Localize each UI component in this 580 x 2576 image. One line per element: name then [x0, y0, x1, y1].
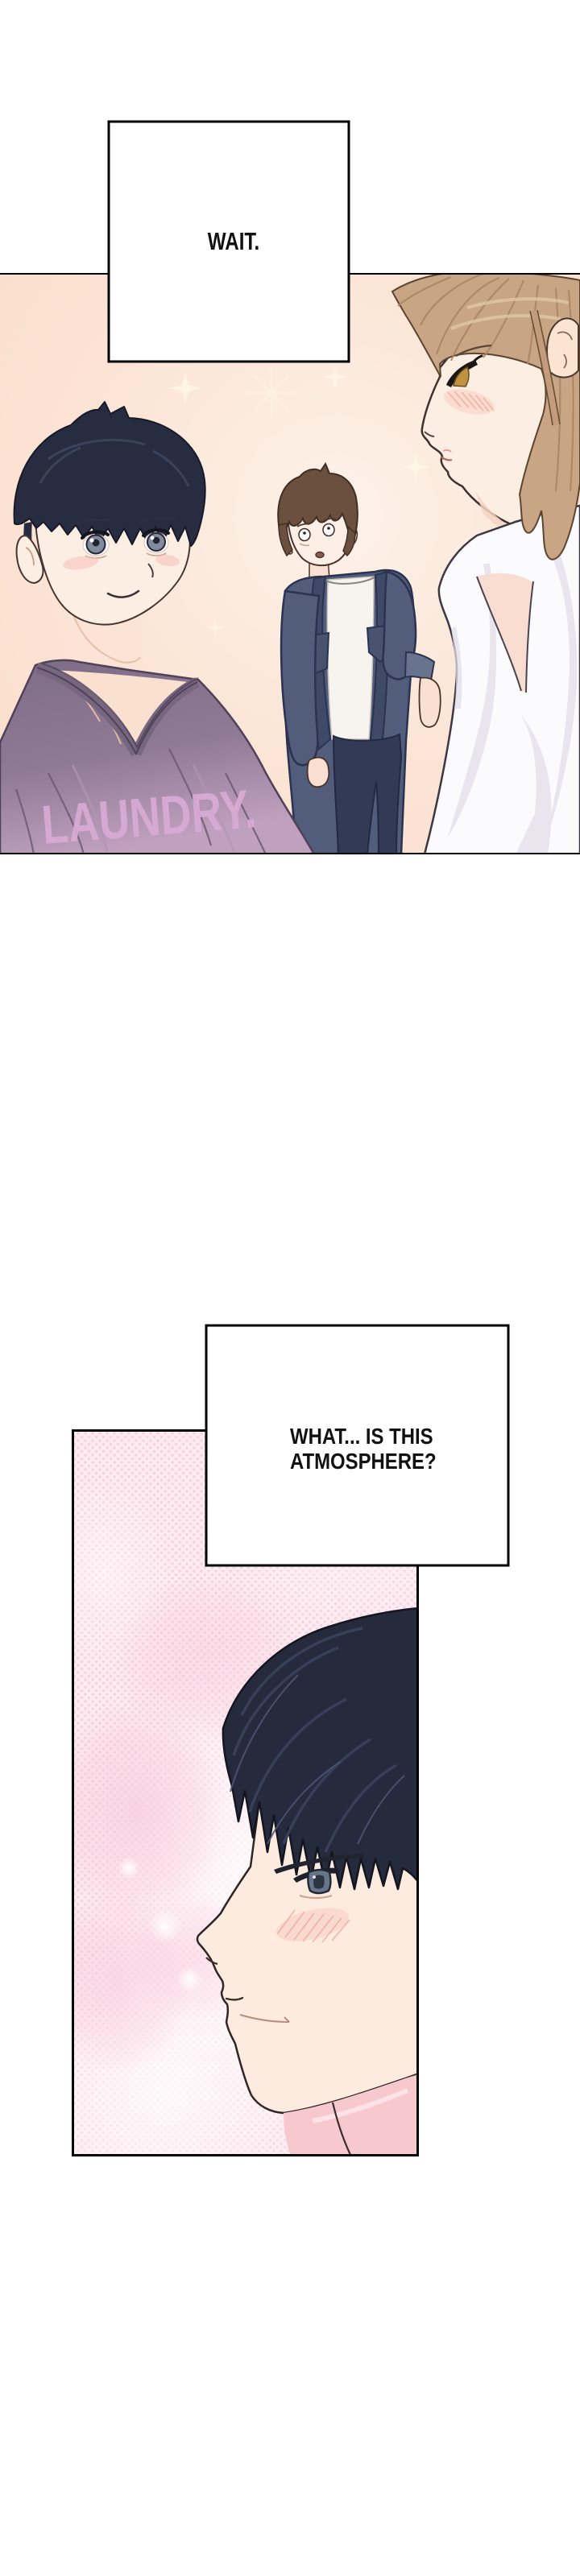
- svg-text:WHAT... IS THIS: WHAT... IS THIS: [290, 1425, 433, 1449]
- svg-text:ATMOSPHERE?: ATMOSPHERE?: [290, 1450, 437, 1474]
- svg-text:WAIT.: WAIT.: [208, 227, 259, 255]
